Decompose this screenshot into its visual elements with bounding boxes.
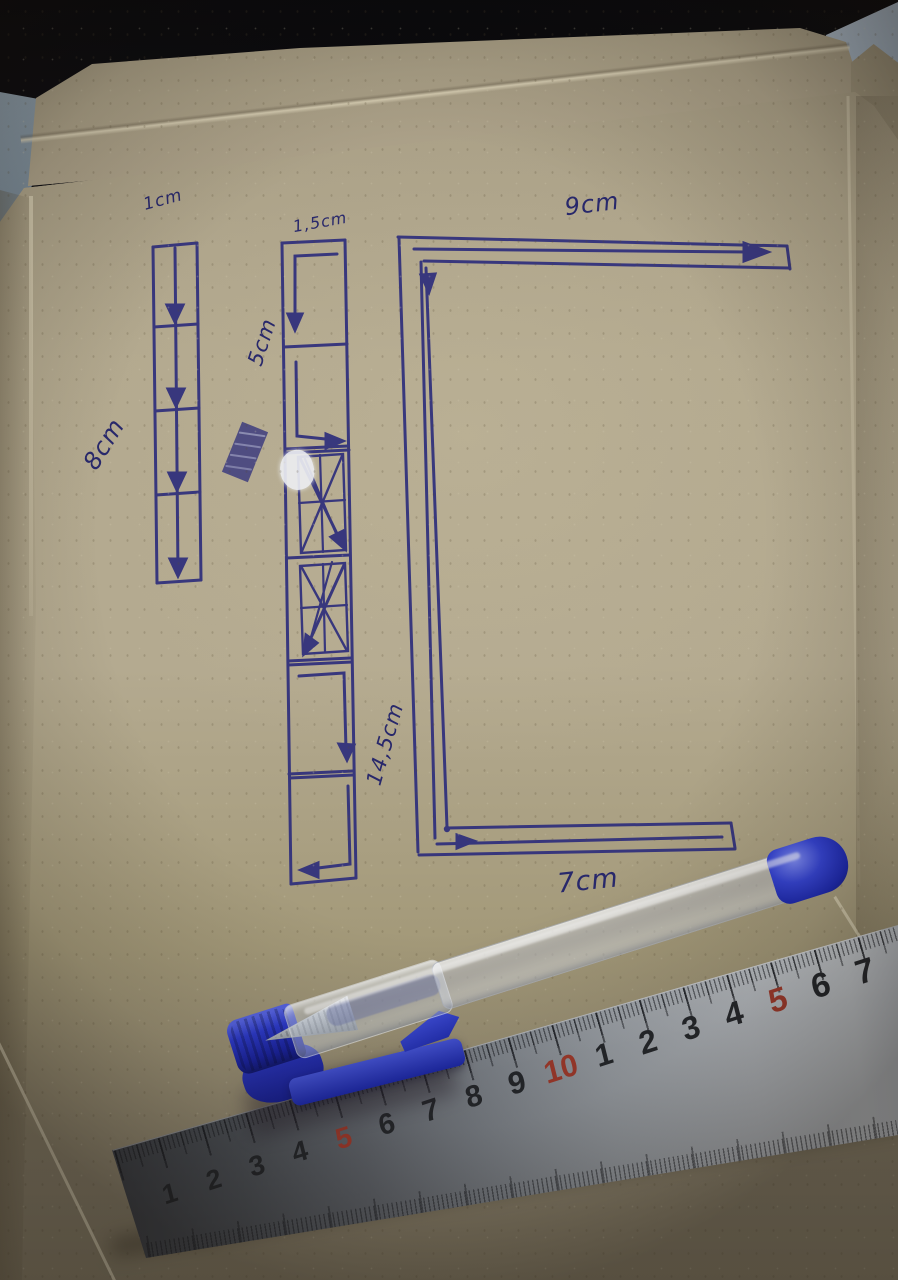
sketch-strip-1cm: [153, 243, 201, 583]
pen-end-plug: [764, 829, 856, 907]
sketch-bracket: [398, 237, 790, 855]
sketch-strip-1-5cm: [282, 240, 356, 884]
ink-scribble-mark: [222, 422, 268, 483]
photo-scene: 1cm 8cm 1,5cm 5cm 14,5cm 9cm 7cm 1 2 3 4…: [0, 0, 898, 1280]
